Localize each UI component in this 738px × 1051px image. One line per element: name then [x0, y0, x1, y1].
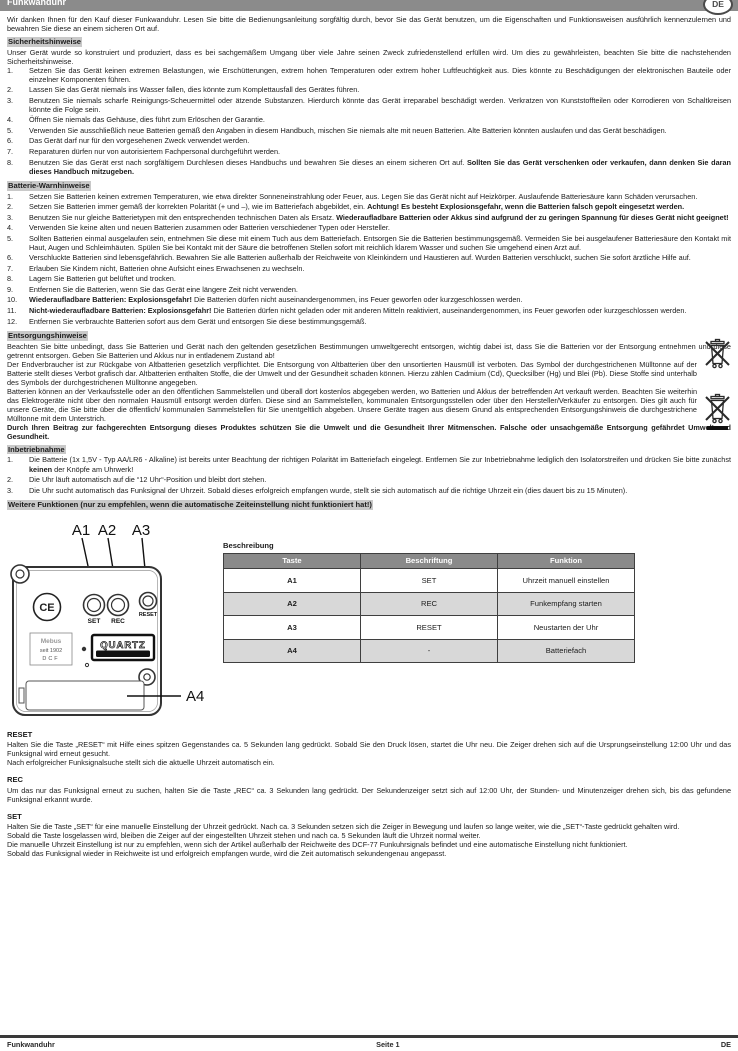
- list-item-number: 3.: [7, 486, 18, 495]
- svg-text:A1: A1: [72, 522, 90, 539]
- footer-center: Seite 1: [376, 1040, 400, 1049]
- list-item-text: Die Batterie (1x 1,5V - Typ AA/LR6 - Alk…: [18, 455, 731, 473]
- footer-left: Funkwanduhr: [7, 1040, 55, 1049]
- table-cell: A4: [224, 639, 361, 662]
- section-heading-rec: REC: [7, 775, 731, 784]
- section-safety: Sicherheitshinweise Unser Gerät wurde so…: [7, 33, 731, 176]
- paragraph: Sobald die Taste losgelassen wird, bleib…: [7, 831, 731, 840]
- svg-text:Mebus: Mebus: [41, 638, 62, 645]
- table-cell: REC: [361, 592, 498, 615]
- table-cell: -: [361, 639, 498, 662]
- list-item-text: Setzen Sie Batterien immer gemäß der kor…: [18, 202, 731, 211]
- section-heading-disposal: Entsorgungshinweise: [7, 331, 88, 340]
- list-item: 1.Die Batterie (1x 1,5V - Typ AA/LR6 - A…: [7, 455, 731, 473]
- list-item: 6.Verschluckte Batterien sind lebensgefä…: [7, 253, 731, 262]
- disposal-paragraph: Batterien können an der Verkaufsstelle o…: [7, 387, 731, 423]
- weee-crossed-bin-underlined-icon: [704, 393, 731, 433]
- list-item: 4.Verwenden Sie keine alten und neuen Ba…: [7, 223, 731, 232]
- list-item-text: Wiederaufladbare Batterien: Explosionsge…: [18, 295, 731, 304]
- list-item-text: Benutzen Sie niemals scharfe Reinigungs-…: [18, 96, 731, 114]
- list-item-text: Sollten Batterien einmal ausgelaufen sei…: [18, 234, 731, 252]
- section-disposal: Entsorgungshinweise Beachten Sie bitte u…: [7, 327, 731, 441]
- table-row: A1SETUhrzeit manuell einstellen: [224, 569, 635, 592]
- list-item: 8.Lagern Sie Batterien gut belüftet und …: [7, 274, 731, 283]
- list-item-number: 5.: [7, 234, 18, 252]
- list-item-number: 3.: [7, 96, 18, 114]
- table-header-row: Taste Beschriftung Funktion: [224, 553, 635, 568]
- list-item-text: Verwenden Sie ausschließlich neue Batter…: [18, 126, 731, 135]
- table-row: A2RECFunkempfang starten: [224, 592, 635, 615]
- list-item-text: Öffnen Sie niemals das Gehäuse, dies füh…: [18, 115, 731, 124]
- list-item-text: Die Uhr läuft automatisch auf die “12 Uh…: [18, 475, 731, 484]
- list-item: 8.Benutzen Sie das Gerät erst nach sorgf…: [7, 158, 731, 176]
- reset-paragraphs: Halten Sie die Taste „RESET“ mit Hilfe e…: [7, 740, 731, 767]
- list-item-number: 9.: [7, 285, 18, 294]
- list-item-number: 6.: [7, 253, 18, 262]
- list-item-text: Lagern Sie Batterien gut belüftet und tr…: [18, 274, 731, 283]
- paragraph: Die manuelle Uhrzeit Einstellung ist nur…: [7, 840, 731, 849]
- paragraph: Sobald das Funksignal wieder in Reichwei…: [7, 849, 731, 858]
- list-item-number: 7.: [7, 264, 18, 273]
- list-item-text: Entfernen Sie verbrauchte Batterien sofo…: [18, 317, 731, 326]
- list-item-text: Benutzen Sie das Gerät erst nach sorgfäl…: [18, 158, 731, 176]
- list-item-text: Erlauben Sie Kindern nicht, Batterien oh…: [18, 264, 731, 273]
- table-cell: Funkempfang starten: [498, 592, 635, 615]
- language-badge: DE: [703, 0, 733, 15]
- paragraph: Halten Sie die Taste „RESET“ mit Hilfe e…: [7, 740, 731, 758]
- table-cell: Neustarten der Uhr: [498, 616, 635, 639]
- svg-text:A2: A2: [98, 522, 116, 539]
- list-item-number: 7.: [7, 147, 18, 156]
- list-item-number: 10.: [7, 295, 18, 304]
- table-cell: A2: [224, 592, 361, 615]
- list-item-number: 4.: [7, 223, 18, 232]
- list-item-number: 2.: [7, 202, 18, 211]
- list-item: 3.Die Uhr sucht automatisch das Funksign…: [7, 486, 731, 495]
- page-title: Funkwanduhr: [7, 0, 66, 8]
- rec-paragraphs: Um das nur das Funksignal erneut zu such…: [7, 786, 731, 804]
- section-more-functions: Weitere Funktionen (nur zu empfehlen, we…: [7, 496, 731, 721]
- list-item-number: 1.: [7, 66, 18, 84]
- list-item-number: 5.: [7, 126, 18, 135]
- list-item-text: Verschluckte Batterien sind lebensgefähr…: [18, 253, 731, 262]
- svg-text:DCF: DCF: [42, 656, 59, 662]
- table-cell: A1: [224, 569, 361, 592]
- list-item: 2.Setzen Sie Batterien immer gemäß der k…: [7, 202, 731, 211]
- list-item: 1.Setzen Sie Batterien keinen extremen T…: [7, 192, 731, 201]
- list-item-number: 8.: [7, 274, 18, 283]
- list-item: 3.Benutzen Sie nur gleiche Batterietypen…: [7, 213, 731, 222]
- col-header-funktion: Funktion: [498, 553, 635, 568]
- intro-paragraph: Wir danken Ihnen für den Kauf dieser Fun…: [7, 15, 731, 33]
- table-cell: A3: [224, 616, 361, 639]
- set-paragraphs: Halten Sie die Taste „SET“ für eine manu…: [7, 822, 731, 858]
- list-item-number: 12.: [7, 317, 18, 326]
- section-heading-more-functions: Weitere Funktionen (nur zu empfehlen, we…: [7, 500, 373, 509]
- list-item: 7.Reparaturen dürfen nur von autorisiert…: [7, 147, 731, 156]
- list-item-text: Benutzen Sie nur gleiche Batterietypen m…: [18, 213, 731, 222]
- table-cell: RESET: [361, 616, 498, 639]
- page-header-bar: Funkwanduhr: [0, 0, 738, 11]
- list-item-number: 2.: [7, 85, 18, 94]
- table-title: Beschreibung: [223, 541, 635, 550]
- list-item-number: 11.: [7, 306, 18, 315]
- section-heading-battery: Batterie-Warnhinweise: [7, 181, 91, 190]
- disposal-paragraph: Beachten Sie bitte unbedingt, dass Sie B…: [7, 342, 731, 360]
- list-item: 2.Die Uhr läuft automatisch auf die “12 …: [7, 475, 731, 484]
- table-row: A4-Batteriefach: [224, 639, 635, 662]
- section-battery-warnings: Batterie-Warnhinweise 1.Setzen Sie Batte…: [7, 177, 731, 326]
- section-set: SET Halten Sie die Taste „SET“ für eine …: [7, 812, 731, 859]
- list-item-number: 4.: [7, 115, 18, 124]
- list-item: 6.Das Gerät darf nur für den vorgesehene…: [7, 136, 731, 145]
- list-item-text: Lassen Sie das Gerät niemals ins Wasser …: [18, 85, 731, 94]
- list-item: 3.Benutzen Sie niemals scharfe Reinigung…: [7, 96, 731, 114]
- list-item-number: 1.: [7, 192, 18, 201]
- list-item-text: Das Gerät darf nur für den vorgesehenen …: [18, 136, 731, 145]
- description-table: Taste Beschriftung Funktion A1SETUhrzeit…: [223, 553, 635, 663]
- list-item-text: Reparaturen dürfen nur von autorisiertem…: [18, 147, 731, 156]
- list-item-text: Setzen Sie das Gerät keinen extremen Bel…: [18, 66, 731, 84]
- list-item: 5.Sollten Batterien einmal ausgelaufen s…: [7, 234, 731, 252]
- svg-text:CE: CE: [39, 602, 54, 614]
- col-header-taste: Taste: [224, 553, 361, 568]
- section-heading-reset: RESET: [7, 730, 731, 739]
- svg-text:REC: REC: [111, 618, 125, 625]
- svg-text:A3: A3: [132, 522, 150, 539]
- section-rec: REC Um das nur das Funksignal erneut zu …: [7, 775, 731, 804]
- section-heading-safety: Sicherheitshinweise: [7, 37, 82, 46]
- list-item: 4.Öffnen Sie niemals das Gehäuse, dies f…: [7, 115, 731, 124]
- description-table-block: Beschreibung Taste Beschriftung Funktion…: [223, 541, 635, 663]
- svg-text:A4: A4: [186, 688, 204, 705]
- col-header-beschriftung: Beschriftung: [361, 553, 498, 568]
- safety-intro: Unser Gerät wurde so konstruiert und pro…: [7, 48, 731, 66]
- paragraph: Um das nur das Funksignal erneut zu such…: [7, 786, 731, 804]
- table-body: A1SETUhrzeit manuell einstellenA2RECFunk…: [224, 569, 635, 663]
- section-reset: RESET Halten Sie die Taste „RESET“ mit H…: [7, 730, 731, 768]
- setup-list: 1.Die Batterie (1x 1,5V - Typ AA/LR6 - A…: [7, 455, 731, 494]
- list-item-number: 6.: [7, 136, 18, 145]
- table-row: A3RESETNeustarten der Uhr: [224, 616, 635, 639]
- list-item: 1.Setzen Sie das Gerät keinen extremen B…: [7, 66, 731, 84]
- list-item-text: Die Uhr sucht automatisch das Funksignal…: [18, 486, 731, 495]
- table-cell: Batteriefach: [498, 639, 635, 662]
- list-item-number: 3.: [7, 213, 18, 222]
- paragraph: Halten Sie die Taste „SET“ für eine manu…: [7, 822, 731, 831]
- list-item: 5.Verwenden Sie ausschließlich neue Batt…: [7, 126, 731, 135]
- section-setup: Inbetriebnahme 1.Die Batterie (1x 1,5V -…: [7, 441, 731, 495]
- section-heading-setup: Inbetriebnahme: [7, 445, 66, 454]
- battery-list: 1.Setzen Sie Batterien keinen extremen T…: [7, 192, 731, 326]
- list-item-text: Setzen Sie Batterien keinen extremen Tem…: [18, 192, 731, 201]
- list-item: 9.Entfernen Sie die Batterien, wenn Sie …: [7, 285, 731, 294]
- page-footer: Funkwanduhr Seite 1 DE: [0, 1035, 738, 1051]
- list-item: 12.Entfernen Sie verbrauchte Batterien s…: [7, 317, 731, 326]
- list-item: 7.Erlauben Sie Kindern nicht, Batterien …: [7, 264, 731, 273]
- table-cell: Uhrzeit manuell einstellen: [498, 569, 635, 592]
- svg-text:SET: SET: [88, 618, 101, 625]
- list-item-number: 2.: [7, 475, 18, 484]
- list-item-text: Entfernen Sie die Batterien, wenn Sie da…: [18, 285, 731, 294]
- section-heading-set: SET: [7, 812, 731, 821]
- disposal-paragraph: Der Endverbraucher ist zur Rückgabe von …: [7, 360, 731, 387]
- list-item-number: 8.: [7, 158, 18, 176]
- list-item: 2.Lassen Sie das Gerät niemals ins Wasse…: [7, 85, 731, 94]
- svg-text:seit 1902: seit 1902: [40, 648, 62, 654]
- list-item: 11.Nicht-wiederaufladbare Batterien: Exp…: [7, 306, 731, 315]
- list-item-number: 1.: [7, 455, 18, 473]
- table-cell: SET: [361, 569, 498, 592]
- clock-back-diagram: A1 A2 A3 CE: [7, 515, 217, 722]
- list-item: 10.Wiederaufladbare Batterien: Explosion…: [7, 295, 731, 304]
- svg-text:QUARTZ: QUARTZ: [100, 640, 146, 651]
- svg-text:RESET: RESET: [139, 612, 158, 618]
- safety-list: 1.Setzen Sie das Gerät keinen extremen B…: [7, 66, 731, 176]
- figure-row: A1 A2 A3 CE: [7, 515, 731, 722]
- weee-crossed-bin-icon: [704, 338, 731, 372]
- list-item-text: Nicht-wiederaufladbare Batterien: Explos…: [18, 306, 731, 315]
- paragraph: Nach erfolgreicher Funksignalsuche stell…: [7, 758, 731, 767]
- disposal-paragraph-bold: Durch Ihren Beitrag zur fachgerechten En…: [7, 423, 731, 441]
- footer-right: DE: [721, 1040, 731, 1049]
- list-item-text: Verwenden Sie keine alten und neuen Batt…: [18, 223, 731, 232]
